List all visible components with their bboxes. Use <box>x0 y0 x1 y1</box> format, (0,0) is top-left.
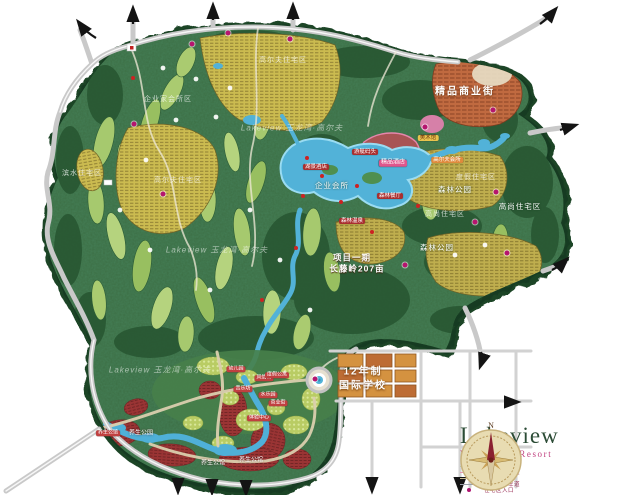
resort-masterplan-screenshot: Lakeview 玉龙湾·高尔夫Lakeview 玉龙湾·高尔夫Lakeview… <box>0 0 640 495</box>
resort-logo-block: N Lakeview Yulongwan Resort 丛林漫步道溪谷亲水栈道马… <box>460 418 638 494</box>
school-blocks <box>338 354 416 397</box>
svg-text:N: N <box>488 421 494 430</box>
compass-rose-icon: N <box>460 418 524 494</box>
roundabout-fountain <box>307 368 331 392</box>
